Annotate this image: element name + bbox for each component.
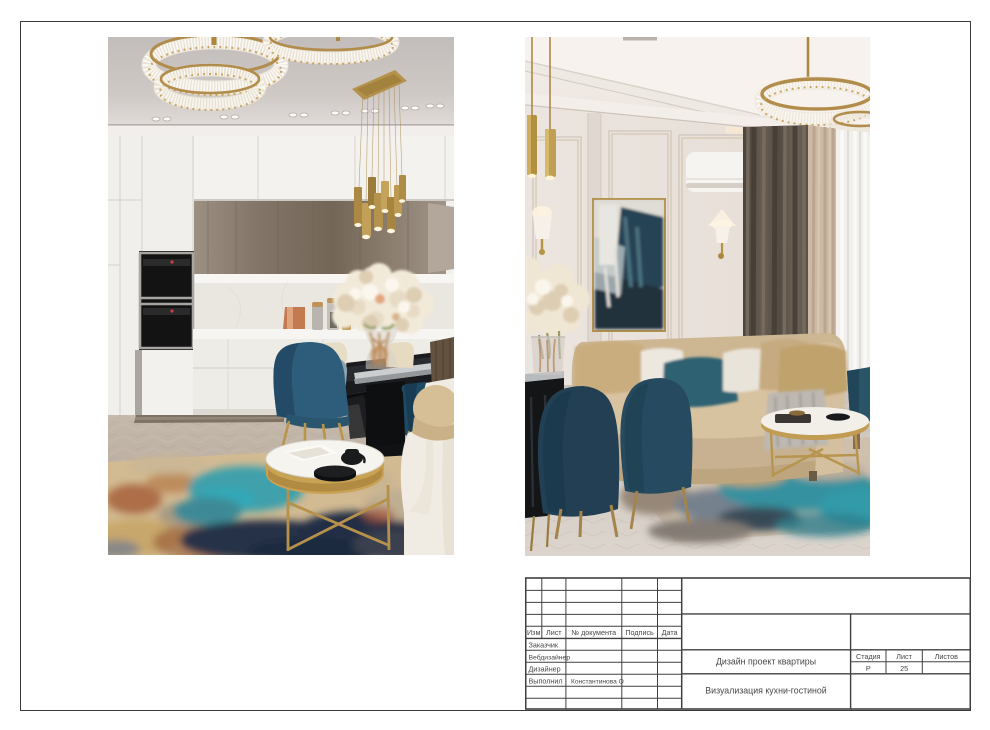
svg-text:Изм: Изм — [527, 628, 540, 637]
svg-text:Дизайнер: Дизайнер — [529, 664, 561, 673]
svg-text:Стадия: Стадия — [856, 652, 881, 661]
svg-text:Вебдизайнер: Вебдизайнер — [529, 653, 571, 661]
svg-text:№ документа: № документа — [571, 628, 616, 637]
svg-text:25: 25 — [900, 664, 908, 673]
svg-text:Р: Р — [866, 664, 871, 673]
svg-text:Визуализация кухни-гостиной: Визуализация кухни-гостиной — [705, 686, 826, 696]
svg-text:Дизайн проект квартиры: Дизайн проект квартиры — [716, 657, 816, 667]
svg-text:Заказчик: Заказчик — [529, 640, 559, 649]
svg-text:Константинова О: Константинова О — [571, 678, 624, 685]
svg-text:Листов: Листов — [935, 652, 959, 661]
svg-text:Выполнил: Выполнил — [529, 676, 563, 685]
svg-text:Подпись: Подпись — [625, 628, 654, 637]
svg-text:Лист: Лист — [896, 652, 912, 661]
svg-text:Лист: Лист — [546, 628, 562, 637]
svg-text:Дата: Дата — [662, 628, 678, 637]
